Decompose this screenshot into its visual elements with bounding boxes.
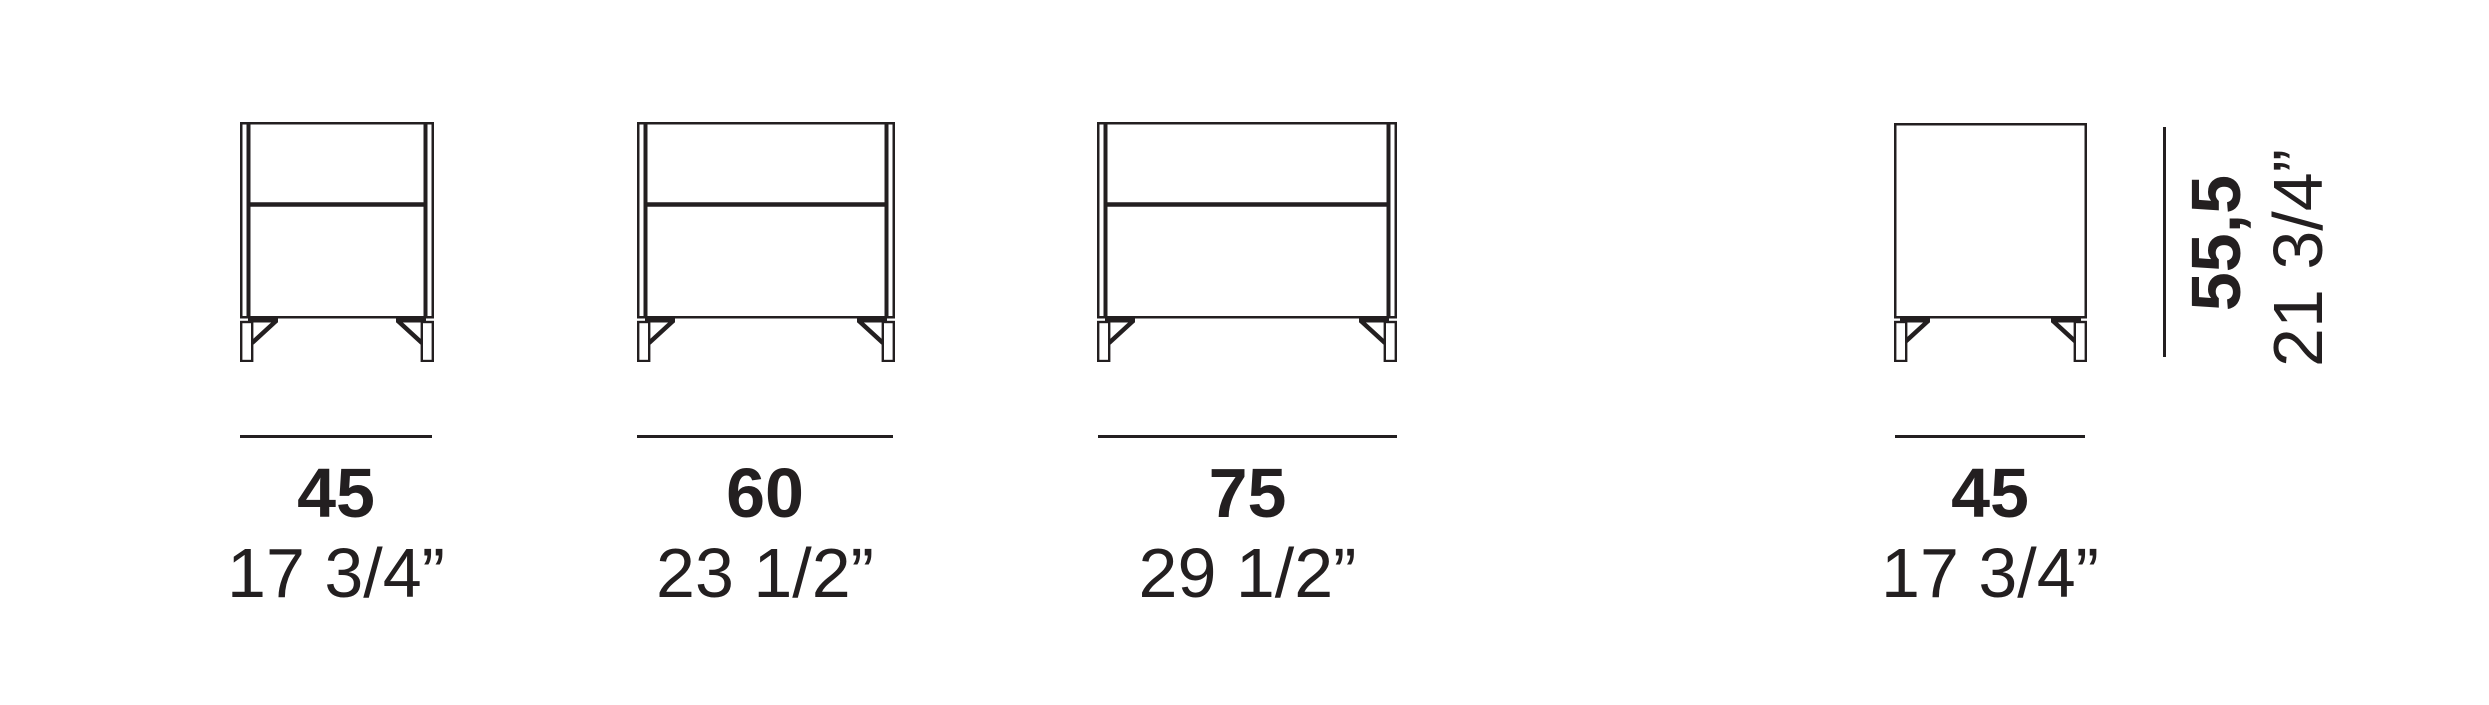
width-inches-label: 17 3/4” bbox=[1881, 538, 2099, 608]
cabinet-outline bbox=[1098, 123, 1396, 317]
leg-foot bbox=[638, 322, 649, 361]
leg-foot bbox=[1098, 322, 1109, 361]
leg-foot bbox=[422, 322, 433, 361]
width-dimension-line bbox=[1098, 435, 1397, 438]
leg-left bbox=[1895, 317, 1930, 361]
leg-left bbox=[638, 317, 675, 361]
width-inches-label: 17 3/4” bbox=[227, 538, 445, 608]
width-dimension-unit-4: 45 17 3/4” bbox=[1895, 435, 2085, 608]
width-dimension-line bbox=[1895, 435, 2085, 438]
leg-foot bbox=[1385, 322, 1396, 361]
width-cm-label: 45 bbox=[297, 458, 375, 528]
leg-left bbox=[1098, 317, 1135, 361]
width-dimension-unit-1: 45 17 3/4” bbox=[240, 435, 432, 608]
leg-foot bbox=[241, 322, 252, 361]
leg-brace bbox=[398, 321, 422, 343]
leg-foot bbox=[1895, 322, 1906, 361]
height-cm-label: 55,5 bbox=[2181, 93, 2251, 393]
height-dimension-line bbox=[2163, 127, 2166, 357]
leg-left bbox=[241, 317, 278, 361]
width-inches-label: 29 1/2” bbox=[1139, 538, 1357, 608]
width-inches-label: 23 1/2” bbox=[656, 538, 874, 608]
cabinet-outline bbox=[638, 123, 894, 317]
leg-foot bbox=[883, 322, 894, 361]
leg-brace bbox=[1904, 321, 1928, 343]
cabinet-front-45-drawing bbox=[240, 122, 434, 362]
width-cm-label: 60 bbox=[726, 458, 804, 528]
cabinet-side-45-drawing bbox=[1894, 123, 2087, 362]
leg-right bbox=[2051, 317, 2086, 361]
width-dimension-unit-3: 75 29 1/2” bbox=[1098, 435, 1397, 608]
leg-brace bbox=[1109, 321, 1133, 343]
cabinet-front-60-drawing bbox=[637, 122, 895, 362]
leg-right bbox=[857, 317, 894, 361]
cabinet-outline bbox=[241, 123, 433, 317]
cabinet-front-75-drawing bbox=[1097, 122, 1397, 362]
leg-brace bbox=[859, 321, 883, 343]
leg-right bbox=[396, 317, 433, 361]
leg-brace bbox=[1361, 321, 1385, 343]
width-cm-label: 45 bbox=[1951, 458, 2029, 528]
leg-brace bbox=[252, 321, 276, 343]
height-inches-label: 21 3/4” bbox=[2263, 108, 2333, 408]
width-cm-label: 75 bbox=[1209, 458, 1287, 528]
dimension-diagram: 45 17 3/4” 60 23 1/2” 75 29 1/2” 45 17 3… bbox=[0, 0, 2489, 705]
width-dimension-line bbox=[637, 435, 893, 438]
leg-brace bbox=[649, 321, 673, 343]
width-dimension-line bbox=[240, 435, 432, 438]
width-dimension-unit-2: 60 23 1/2” bbox=[637, 435, 893, 608]
cabinet-outline bbox=[1895, 124, 2086, 317]
leg-right bbox=[1359, 317, 1396, 361]
leg-brace bbox=[2053, 321, 2077, 343]
leg-foot bbox=[2075, 322, 2086, 361]
